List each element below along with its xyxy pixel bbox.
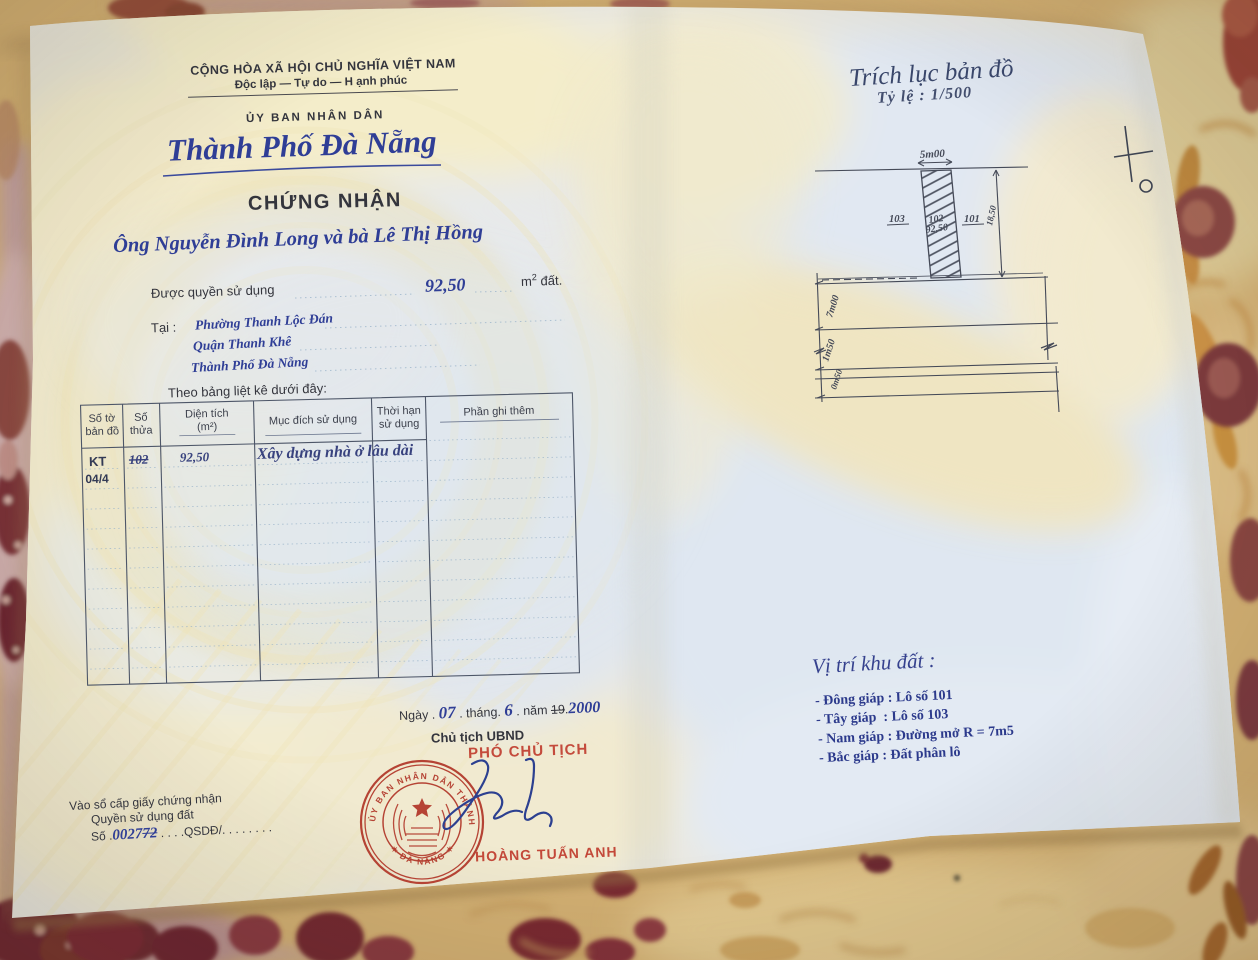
svg-text:0m50: 0m50 — [828, 368, 844, 391]
svg-text:18,50: 18,50 — [984, 204, 998, 226]
svg-text:1m50: 1m50 — [820, 338, 838, 363]
svg-text:103: 103 — [889, 214, 905, 225]
svg-text:102: 102 — [129, 452, 149, 468]
svg-text:thửa: thửa — [130, 424, 154, 437]
svg-text:04/4: 04/4 — [85, 472, 109, 487]
svg-text:Diện tích: Diện tích — [185, 408, 229, 421]
svg-text:5m00: 5m00 — [920, 148, 946, 161]
svg-text:7m00: 7m00 — [824, 294, 842, 319]
svg-text:Phần ghi thêm: Phần ghi thêm — [463, 405, 534, 419]
svg-text:KT: KT — [89, 454, 107, 469]
svg-text:92,50: 92,50 — [180, 449, 210, 465]
svg-text:Xây dựng nhà ở lâu dài: Xây dựng nhà ở lâu dài — [256, 442, 414, 463]
svg-text:Thời hạn: Thời hạn — [377, 405, 421, 418]
svg-text:sử dụng: sử dụng — [379, 418, 420, 431]
svg-text:Số tờ: Số tờ — [88, 412, 115, 425]
svg-text:101: 101 — [964, 214, 980, 225]
svg-text:Số: Số — [134, 412, 148, 424]
svg-text:bản đồ: bản đồ — [85, 425, 119, 438]
svg-text:(m²): (m²) — [197, 421, 217, 434]
svg-text:Mục đích sử dụng: Mục đích sử dụng — [269, 413, 357, 427]
